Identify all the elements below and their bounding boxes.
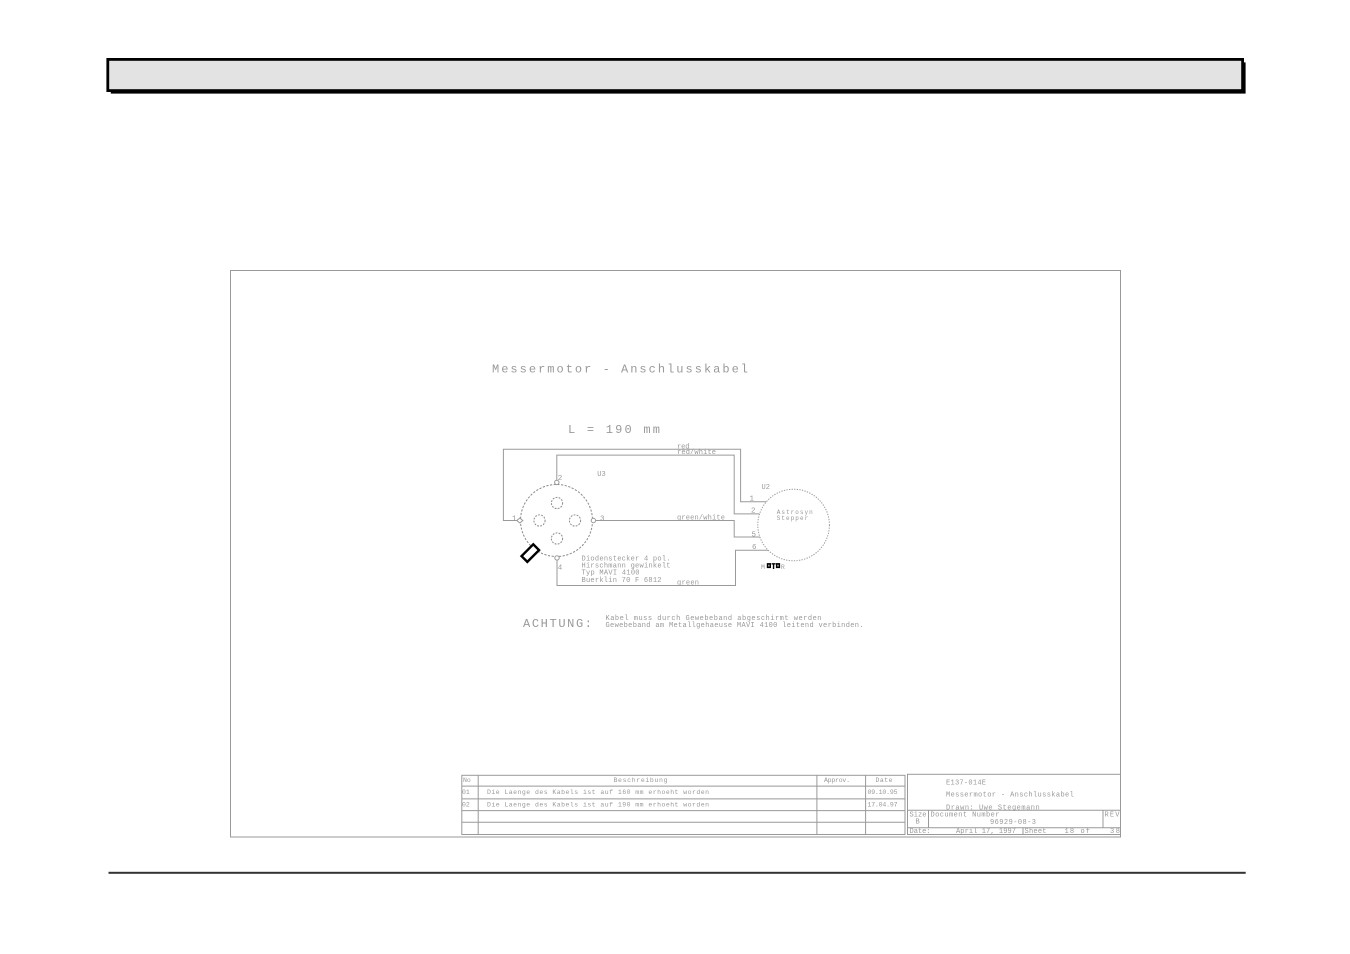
svg-text:U3: U3 bbox=[597, 471, 605, 479]
svg-text:02: 02 bbox=[462, 801, 470, 808]
svg-text:ACHTUNG:: ACHTUNG: bbox=[523, 617, 592, 631]
svg-text:09.10.95: 09.10.95 bbox=[868, 789, 898, 796]
svg-text:E137-014E: E137-014E bbox=[946, 780, 986, 788]
svg-text:38: 38 bbox=[1110, 828, 1120, 836]
svg-text:Beschreibung: Beschreibung bbox=[614, 777, 668, 784]
svg-text:Approv.: Approv. bbox=[824, 777, 850, 784]
svg-text:2: 2 bbox=[558, 475, 563, 483]
svg-text:4: 4 bbox=[558, 565, 563, 573]
svg-text:R: R bbox=[781, 564, 785, 571]
svg-text:U2: U2 bbox=[762, 484, 770, 492]
svg-text:Buerklin 70 F 6812: Buerklin 70 F 6812 bbox=[582, 577, 662, 585]
svg-text:18 of: 18 of bbox=[1065, 828, 1091, 836]
svg-text:5: 5 bbox=[752, 531, 757, 539]
svg-text:M: M bbox=[761, 564, 765, 571]
svg-text:B: B bbox=[916, 818, 920, 826]
svg-text:1: 1 bbox=[750, 495, 755, 503]
svg-text:Messermotor - Anschlusskabel: Messermotor - Anschlusskabel bbox=[946, 791, 1074, 799]
svg-text:01: 01 bbox=[462, 789, 470, 796]
svg-text:green/white: green/white bbox=[677, 515, 725, 523]
svg-text:April 17, 1997: April 17, 1997 bbox=[956, 828, 1016, 836]
svg-text:green: green bbox=[677, 580, 699, 588]
svg-text:Stepper: Stepper bbox=[777, 515, 809, 522]
svg-text:Gewebeband am Metallgehaeuse M: Gewebeband am Metallgehaeuse MAVI 4100 l… bbox=[606, 622, 864, 630]
svg-text:REV: REV bbox=[1105, 811, 1121, 819]
svg-text:96929-08-3: 96929-08-3 bbox=[990, 819, 1036, 827]
svg-text:Date: Date bbox=[876, 777, 893, 784]
svg-text:Die Laenge des Kabels ist auf: Die Laenge des Kabels ist auf 190 mm erh… bbox=[487, 801, 709, 808]
svg-text:Sheet: Sheet bbox=[1025, 828, 1047, 836]
svg-text:6: 6 bbox=[752, 544, 757, 552]
svg-text:2: 2 bbox=[751, 508, 756, 516]
svg-text:17.04.97: 17.04.97 bbox=[868, 801, 898, 808]
svg-text:No: No bbox=[463, 777, 471, 784]
svg-text:1: 1 bbox=[512, 515, 517, 523]
svg-text:Die Laenge des Kabels ist auf: Die Laenge des Kabels ist auf 160 mm erh… bbox=[487, 789, 709, 796]
svg-text:red/white: red/white bbox=[677, 449, 716, 457]
svg-text:3: 3 bbox=[600, 515, 605, 523]
svg-text:Date:: Date: bbox=[910, 828, 931, 836]
